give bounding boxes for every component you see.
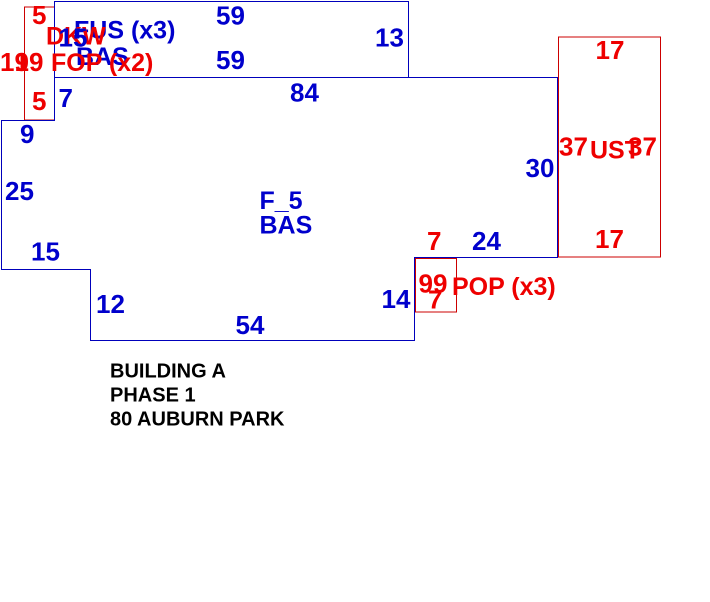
svg-text:37: 37 [628, 132, 657, 162]
svg-text:54: 54 [236, 310, 265, 340]
svg-text:BAS: BAS [260, 212, 313, 240]
svg-text:59: 59 [216, 45, 245, 75]
svg-text:FOP (x2): FOP (x2) [51, 49, 153, 77]
svg-text:7: 7 [59, 83, 73, 113]
svg-text:37: 37 [559, 132, 588, 162]
svg-text:59: 59 [216, 1, 245, 31]
svg-text:5: 5 [32, 0, 46, 30]
svg-text:14: 14 [382, 284, 411, 314]
svg-text:9: 9 [20, 119, 34, 149]
svg-text:15: 15 [31, 237, 60, 267]
svg-text:5: 5 [32, 86, 46, 116]
svg-text:24: 24 [472, 226, 501, 256]
svg-text:7: 7 [427, 226, 441, 256]
svg-text:15: 15 [59, 23, 88, 53]
svg-text:PHASE 1: PHASE 1 [110, 385, 196, 407]
svg-text:25: 25 [5, 176, 34, 206]
svg-text:12: 12 [96, 289, 125, 319]
svg-text:7: 7 [428, 285, 442, 315]
svg-text:30: 30 [526, 153, 555, 183]
svg-text:13: 13 [375, 23, 404, 53]
svg-text:84: 84 [290, 78, 319, 108]
svg-text:POP (x3): POP (x3) [452, 273, 556, 301]
svg-text:BUILDING A: BUILDING A [110, 361, 226, 383]
svg-text:17: 17 [595, 224, 624, 254]
svg-text:80 AUBURN PARK: 80 AUBURN PARK [110, 409, 285, 431]
svg-text:19: 19 [15, 47, 44, 77]
svg-text:17: 17 [596, 35, 625, 65]
